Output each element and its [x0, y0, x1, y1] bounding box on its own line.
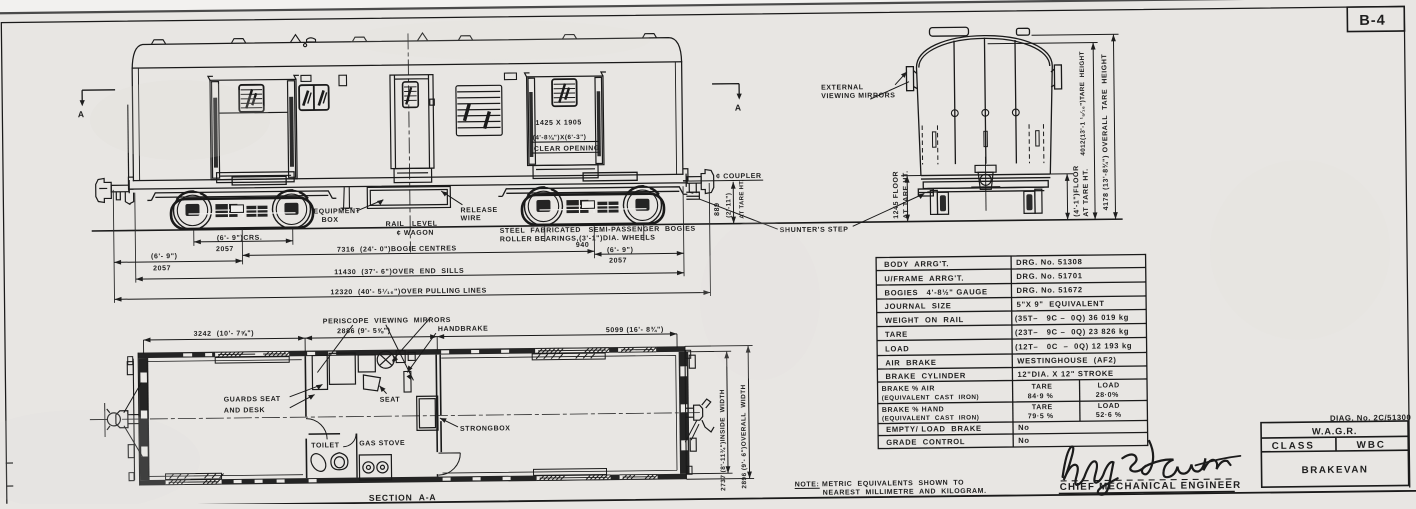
svg-text:WEIGHT ON RAIL: WEIGHT ON RAIL: [885, 315, 964, 325]
svg-text:2896 (9'- 6")OVERALL WIDTH: 2896 (9'- 6")OVERALL WIDTH: [740, 384, 748, 488]
svg-text:GAS STOVE: GAS STOVE: [359, 440, 405, 448]
svg-text:No: No: [1018, 436, 1030, 445]
svg-text:(4'-8⅛")X(6'-3"): (4'-8⅛")X(6'-3"): [533, 134, 587, 142]
svg-text:SECTION A-A: SECTION A-A: [369, 492, 437, 503]
svg-text:(6'- 9"): (6'- 9"): [151, 253, 178, 260]
svg-text:2737 (8'-11¾")INSIDE WIDTH: 2737 (8'-11¾")INSIDE WIDTH: [718, 389, 727, 491]
svg-text:BRAKE % AIR: BRAKE % AIR: [882, 385, 935, 393]
svg-text:WIRE: WIRE: [461, 215, 482, 222]
svg-text:BOX: BOX: [322, 217, 339, 224]
svg-text:B-4: B-4: [1359, 13, 1386, 29]
svg-text:TARE: TARE: [1032, 404, 1053, 411]
svg-text:AIR BRAKE: AIR BRAKE: [885, 358, 936, 368]
svg-text:2886 (9'- 5⅝"): 2886 (9'- 5⅝"): [337, 328, 391, 336]
svg-text:GUARDS SEAT: GUARDS SEAT: [224, 396, 281, 404]
svg-text:No: No: [1018, 423, 1030, 432]
svg-text:EXTERNAL: EXTERNAL: [821, 84, 864, 91]
svg-text:PERISCOPE VIEWING MIRRORS: PERISCOPE VIEWING MIRRORS: [323, 317, 451, 325]
svg-text:4012(13'-1 ¹₅⁄₁₆")TARE HEIGHT: 4012(13'-1 ¹₅⁄₁₆")TARE HEIGHT: [1079, 51, 1087, 156]
svg-text:VIEWING MIRRORS: VIEWING MIRRORS: [821, 92, 895, 100]
svg-text:1425 X 1905: 1425 X 1905: [535, 119, 581, 127]
svg-text:7316 (24'- 0")BOGIE CENTRES: 7316 (24'- 0")BOGIE CENTRES: [337, 245, 457, 253]
svg-text:EQUIPMENT: EQUIPMENT: [313, 208, 360, 216]
svg-text:1245 FLOOR: 1245 FLOOR: [893, 171, 901, 219]
svg-text:(EQUIVALENT CAST IRON): (EQUIVALENT CAST IRON): [882, 414, 980, 422]
svg-text:TARE: TARE: [1032, 384, 1053, 391]
svg-text:(12T– 0C – 0Q) 12 193 kg: (12T– 0C – 0Q) 12 193 kg: [1015, 341, 1132, 351]
svg-text:84·9 %: 84·9 %: [1028, 393, 1054, 400]
svg-text:(6'- 9"): (6'- 9"): [607, 247, 634, 254]
svg-text:11430 (37'- 6")OVER END SIL: 11430 (37'- 6")OVER END SILLS: [334, 268, 464, 276]
svg-text:2057: 2057: [216, 246, 234, 253]
svg-text:LOAD: LOAD: [1098, 382, 1120, 389]
svg-text:BRAKE % HAND: BRAKE % HAND: [882, 406, 945, 414]
svg-text:WESTINGHOUSE (AF2): WESTINGHOUSE (AF2): [1017, 355, 1116, 365]
svg-text:5099 (16'- 8¾"): 5099 (16'- 8¾"): [606, 326, 664, 335]
svg-text:WBC: WBC: [1357, 440, 1387, 451]
svg-text:TARE: TARE: [885, 330, 908, 339]
svg-text:52·6 %: 52·6 %: [1096, 412, 1122, 419]
svg-text:940: 940: [576, 242, 590, 249]
svg-text:A: A: [735, 103, 742, 113]
svg-text:(4'-1")FLOOR: (4'-1")FLOOR: [1073, 165, 1081, 217]
svg-text:AND DESK: AND DESK: [224, 407, 265, 414]
svg-text:HANDBRAKE: HANDBRAKE: [438, 326, 489, 334]
svg-text:RELEASE: RELEASE: [460, 207, 497, 214]
svg-text:(23T– 9C – 0Q) 23 826 kg: (23T– 9C – 0Q) 23 826 kg: [1015, 327, 1129, 337]
svg-text:JOURNAL SIZE: JOURNAL SIZE: [885, 301, 952, 311]
svg-text:AT TARE HT.: AT TARE HT.: [739, 179, 745, 218]
svg-text:3242 (10'- 7⅝"): 3242 (10'- 7⅝"): [194, 330, 255, 338]
svg-text:2057: 2057: [153, 265, 171, 272]
svg-text:LOAD: LOAD: [1098, 403, 1120, 410]
svg-text:GRADE CONTROL: GRADE CONTROL: [886, 437, 965, 447]
svg-text:TOILET: TOILET: [311, 442, 340, 449]
svg-text:(6'- 9")CRS.: (6'- 9")CRS.: [217, 235, 263, 243]
svg-text:DRG. No. 51308: DRG. No. 51308: [1016, 257, 1082, 267]
svg-text:12"DIA. X 12" STROKE: 12"DIA. X 12" STROKE: [1017, 369, 1113, 379]
svg-text:(EQUIVALENT CAST IRON): (EQUIVALENT CAST IRON): [882, 394, 980, 402]
svg-text:RAIL LEVEL: RAIL LEVEL: [386, 221, 438, 229]
svg-text:DRG. No. 51701: DRG. No. 51701: [1016, 271, 1083, 281]
svg-text:LOAD: LOAD: [885, 344, 909, 353]
svg-text:CLASS: CLASS: [1272, 441, 1315, 452]
svg-text:SEAT: SEAT: [380, 397, 401, 404]
svg-text:AT TARE HT.: AT TARE HT.: [1083, 168, 1091, 216]
svg-text:889: 889: [714, 202, 721, 216]
svg-text:STRONGBOX: STRONGBOX: [460, 425, 511, 433]
svg-text:5"X 9" EQUIVALENT: 5"X 9" EQUIVALENT: [1017, 299, 1105, 309]
svg-text:A: A: [78, 109, 85, 119]
svg-text:79·5 %: 79·5 %: [1028, 413, 1054, 420]
svg-text:DRG. No. 51672: DRG. No. 51672: [1016, 285, 1082, 295]
svg-text:2057: 2057: [609, 257, 627, 264]
svg-text:28·0%: 28·0%: [1096, 392, 1119, 399]
svg-text:EMPTY/ LOAD BRAKE: EMPTY/ LOAD BRAKE: [886, 424, 982, 434]
svg-text:¢ COUPLER: ¢ COUPLER: [716, 173, 762, 181]
svg-text:BODY ARRG'T.: BODY ARRG'T.: [884, 259, 949, 269]
svg-text:(35T– 9C – 0Q) 36 019 kg: (35T– 9C – 0Q) 36 019 kg: [1015, 313, 1129, 323]
svg-text:BOGIES 4'-8½" GAUGE: BOGIES 4'-8½" GAUGE: [884, 287, 987, 297]
svg-text:AT TARE HT.: AT TARE HT.: [903, 170, 911, 218]
svg-text:BRAKE CYLINDER: BRAKE CYLINDER: [885, 371, 966, 381]
svg-text:BRAKEVAN: BRAKEVAN: [1302, 464, 1369, 476]
svg-text:¢ WAGON: ¢ WAGON: [397, 230, 434, 237]
svg-text:U/FRAME ARRG'T.: U/FRAME ARRG'T.: [884, 274, 964, 284]
svg-text:(2'-11"): (2'-11"): [725, 192, 732, 217]
svg-text:W.A.G.R.: W.A.G.R.: [1312, 426, 1357, 437]
